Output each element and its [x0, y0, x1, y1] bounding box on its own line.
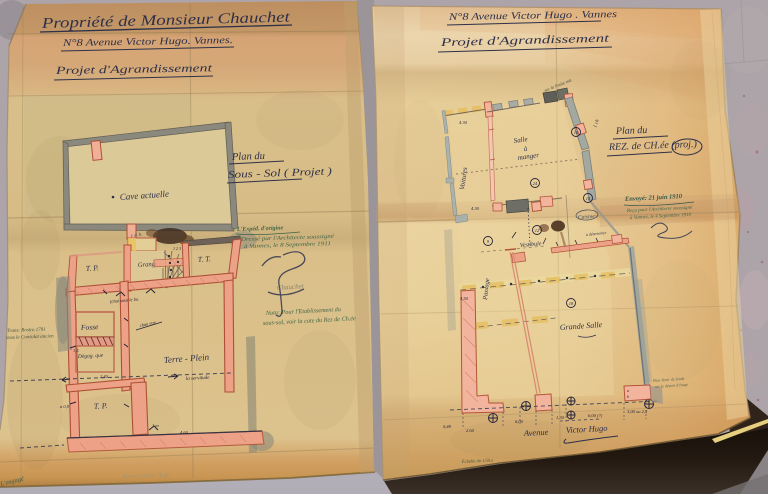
svg-text:14: 14 — [586, 196, 591, 201]
svg-text:2.60: 2.60 — [466, 428, 475, 433]
svg-text:4.30: 4.30 — [459, 120, 468, 125]
svg-text:Plan du: Plan du — [615, 125, 648, 137]
svg-text:Avenue: Avenue — [523, 427, 549, 438]
svg-text:a: a — [627, 388, 629, 393]
svg-text:16: 16 — [574, 130, 579, 135]
svg-text:18: 18 — [569, 301, 574, 306]
svg-text:T. P.: T. P. — [94, 401, 108, 411]
svg-text:T. T.: T. T. — [198, 254, 212, 264]
svg-text:4.30: 4.30 — [471, 206, 480, 211]
svg-text:1 2 3: 1 2 3 — [173, 246, 181, 251]
svg-text:T. P.: T. P. — [86, 263, 100, 273]
svg-text:24: 24 — [533, 181, 538, 186]
svg-text:Fosse: Fosse — [80, 322, 100, 332]
svg-text:12: 12 — [535, 228, 540, 233]
svg-text:Plan du: Plan du — [231, 151, 265, 163]
svg-text:1 m: 1 m — [152, 423, 159, 428]
svg-text:b: b — [627, 394, 629, 399]
